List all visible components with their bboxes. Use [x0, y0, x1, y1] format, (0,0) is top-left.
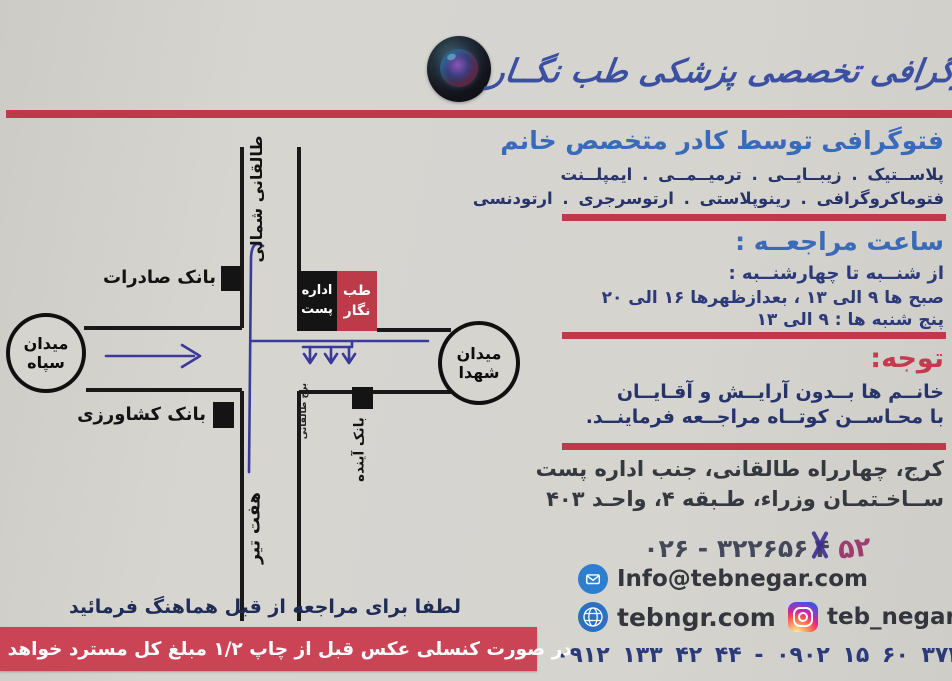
- services-line: پلاســتیک . زیبــایــی . ترمیــمــی . ای…: [560, 165, 944, 184]
- street-line: [84, 326, 242, 330]
- lens-glass: [440, 49, 478, 87]
- shohada-square-circle: میدان شهدا: [438, 321, 520, 405]
- instagram-handle: teb_negar: [827, 604, 952, 630]
- phone-number-main: ۰۲۶ - ۳۲۲۶۵۶۴۵۲: [568, 533, 946, 564]
- bank-saderat-label: بانک صادرات: [86, 267, 216, 288]
- bank-ayandeh-label: بانک آینده: [352, 408, 369, 492]
- notice-line: خانــم ها بــدون آرایــش و آقـایــان: [617, 381, 944, 403]
- post-office-box: اداره پست: [297, 271, 337, 331]
- phone-crossed-digit: ۴: [814, 534, 829, 563]
- red-divider-top: [6, 110, 952, 118]
- email-text: Info@tebnegar.com: [617, 566, 868, 592]
- address-line: ســاخـتمـان وزراء، طـبقه ۴، واحـد ۴۰۳: [546, 487, 944, 511]
- phone-handwritten-correction: ۵۲: [836, 531, 872, 565]
- red-divider: [562, 214, 946, 221]
- street-line: [86, 388, 242, 392]
- bank-keshavarzi-label: بانک کشاورزی: [72, 404, 206, 425]
- notice-title: توجه:: [870, 343, 944, 374]
- hours-title: ساعت مراجعــه :: [735, 227, 944, 256]
- camera-lens-logo: [427, 36, 491, 102]
- shohada-square-label: شهدا: [458, 363, 499, 382]
- website-row: tebngr.com: [578, 602, 776, 632]
- bank-saderat-marker: [221, 266, 241, 291]
- hours-line: صبح ها ۹ الی ۱۳ ، بعدازظهرها ۱۶ الی ۲۰: [602, 288, 944, 308]
- website-text: tebngr.com: [617, 603, 776, 632]
- notice-line: با محـاســن کوتــاه مراجــعه فرماینــد.: [586, 406, 944, 428]
- hours-line: از شنــبه تا چهارشنــبه :: [728, 263, 944, 284]
- street-line: [240, 147, 244, 328]
- teb-negar-label: طب: [343, 281, 371, 301]
- bank-keshavarzi-marker: [213, 402, 234, 428]
- street-line: [297, 147, 301, 273]
- taleghani-tower-label: برج طالقانی: [299, 383, 311, 439]
- teb-negar-label: نگار: [344, 301, 371, 321]
- bank-ayandeh-marker: [352, 387, 373, 409]
- address-line: کرج، چهارراه طالقانی، جنب اداره پست: [536, 457, 944, 481]
- phone-printed-digits: ۰۲۶ - ۳۲۲۶۵۶: [643, 534, 808, 563]
- street-label-haft-tir: هفت تیر: [245, 481, 265, 576]
- refund-banner: در صورت کنسلی عکس قبل از چاپ ۱/۲ مبلغ کل…: [0, 627, 537, 671]
- services-line: فتوماکروگرافی . رینوپلاستی . ارتوسرجری .…: [473, 189, 944, 208]
- post-office-label: اداره: [302, 282, 333, 301]
- hours-line: پنج شنبه ها : ۹ الی ۱۳: [756, 310, 944, 330]
- sepah-square-circle: میدان سپاه: [6, 313, 86, 393]
- sepah-square-label: میدان: [24, 334, 69, 353]
- street-label-taleghani-north: طالقانی شمالی: [247, 134, 267, 264]
- brand-calligraphy: فتوگرافی تخصصی پزشکی طب نگــار: [535, 38, 950, 104]
- envelope-icon: [578, 564, 608, 594]
- flyer: فتوگرافی تخصصی پزشکی طب نگــار م: [0, 0, 952, 681]
- street-line: [377, 328, 451, 332]
- red-divider: [562, 332, 946, 339]
- street-line: [299, 390, 451, 394]
- instagram-icon: [788, 602, 818, 632]
- sepah-square-label: سپاه: [27, 353, 65, 372]
- shohada-square-label: میدان: [457, 344, 502, 363]
- post-office-label: پست: [301, 301, 333, 320]
- red-divider: [562, 443, 946, 450]
- teb-negar-box: طب نگار: [337, 271, 377, 331]
- instagram-row: teb_negar: [788, 602, 952, 632]
- globe-icon: [578, 602, 608, 632]
- pen-cross-mark: [808, 528, 830, 562]
- mobile-numbers: ۰۹۱۲ ۱۳۳ ۴۲ ۴۴ - ۰۹۰۲ ۱۵ ۶۰ ۳۷۳: [556, 643, 948, 668]
- email-row: Info@tebnegar.com: [578, 564, 868, 594]
- appointment-note: لطفا برای مراجعه از قبل هماهنگ فرمائید: [60, 596, 470, 618]
- street-line: [240, 391, 244, 621]
- services-title: فتوگرافی توسط کادر متخصص خانم: [500, 126, 944, 155]
